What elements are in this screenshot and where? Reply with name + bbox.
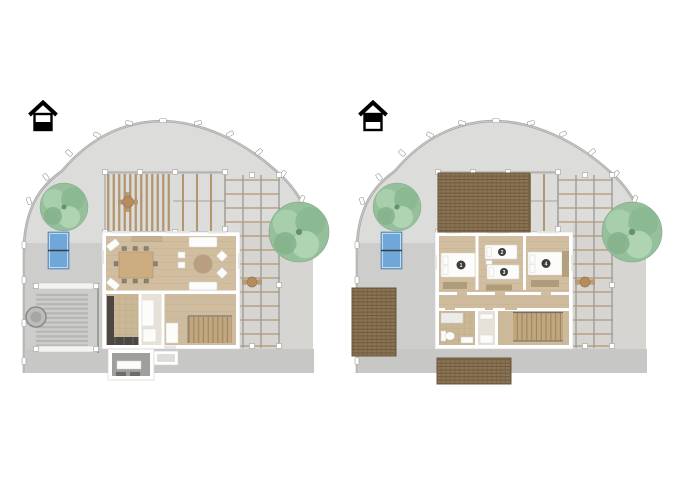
hallway <box>439 292 569 311</box>
shower-tray <box>441 313 463 323</box>
house-upper-floor: 1 2 3 <box>435 231 573 349</box>
door-mat <box>116 372 126 376</box>
floor-plan-viewer: 1 2 3 <box>0 0 700 500</box>
interior-wall <box>439 308 445 311</box>
interior-wall <box>495 311 498 345</box>
bench <box>480 335 493 343</box>
bathroom <box>439 311 475 345</box>
sideboard <box>132 237 162 242</box>
interior-wall <box>551 292 569 295</box>
bed-1-badge: 1 <box>457 261 466 270</box>
window <box>102 250 104 264</box>
kitchen-counter <box>107 296 114 337</box>
interior-wall <box>505 292 541 295</box>
toilet-bowl <box>446 332 455 340</box>
window <box>537 231 559 233</box>
floor-plan-upper: 1 2 3 <box>345 95 675 405</box>
dining-table <box>119 252 153 278</box>
roof-over-carport <box>352 288 396 356</box>
interior-wall <box>476 236 479 290</box>
interior-wall <box>475 311 478 345</box>
interior-wall <box>493 308 505 311</box>
interior-wall <box>523 236 526 290</box>
interior-wall <box>467 292 495 295</box>
bench-sofa <box>189 282 217 290</box>
stair-hall <box>165 294 237 345</box>
round-rug <box>194 255 213 274</box>
tall-cabinet <box>142 300 154 326</box>
pillow <box>530 255 535 263</box>
bed-4-badge: 4 <box>542 259 551 268</box>
side-door <box>238 253 240 269</box>
pillow <box>530 265 535 273</box>
sofa <box>189 237 217 247</box>
bed-number: 3 <box>503 270 506 276</box>
bed-number: 1 <box>460 263 463 269</box>
door-mat <box>130 372 140 376</box>
dresser <box>531 280 559 287</box>
staircase <box>513 313 563 341</box>
porch-bench <box>117 361 141 369</box>
staircase <box>188 317 232 343</box>
window <box>435 255 437 269</box>
storage-closet <box>166 323 178 343</box>
nightstand <box>486 261 492 265</box>
interior-wall <box>517 308 569 311</box>
bed-3-badge: 3 <box>500 268 508 276</box>
terrace-door <box>166 231 190 233</box>
bed-number: 2 <box>501 250 504 256</box>
coffee-table <box>178 262 185 268</box>
sink <box>461 337 473 343</box>
coffee-table <box>178 252 185 258</box>
window <box>112 231 130 233</box>
hallway-planks <box>439 294 569 310</box>
porch-step-tread <box>157 354 175 362</box>
entry-door <box>164 346 176 349</box>
shelf <box>480 314 493 319</box>
pillow <box>487 248 492 257</box>
closet-room <box>478 311 495 345</box>
dresser <box>443 282 467 289</box>
kitchen-lower-counter <box>107 337 140 345</box>
appliance <box>143 329 156 342</box>
stair-hall-upper <box>498 311 569 345</box>
pillow <box>443 266 448 275</box>
interior-wall <box>162 294 165 345</box>
wardrobe <box>562 251 569 277</box>
window <box>571 255 573 271</box>
bed-2-badge: 2 <box>498 248 506 256</box>
pillow <box>443 256 448 265</box>
entry-porch <box>108 349 178 380</box>
living-dining-room <box>106 236 236 292</box>
interior-wall <box>139 294 142 345</box>
interior-wall <box>439 292 457 295</box>
kitchen <box>106 294 140 345</box>
utility-room <box>142 294 162 345</box>
dresser <box>486 285 512 291</box>
roof-over-pergola <box>438 173 530 232</box>
floor-plan-ground <box>12 95 342 405</box>
pillow <box>489 268 494 277</box>
bed-number: 4 <box>545 261 548 267</box>
slat-carport <box>26 283 99 353</box>
roof-over-entry <box>437 358 511 384</box>
interior-wall <box>455 308 485 311</box>
window <box>208 231 226 233</box>
interior-wall <box>106 291 236 295</box>
